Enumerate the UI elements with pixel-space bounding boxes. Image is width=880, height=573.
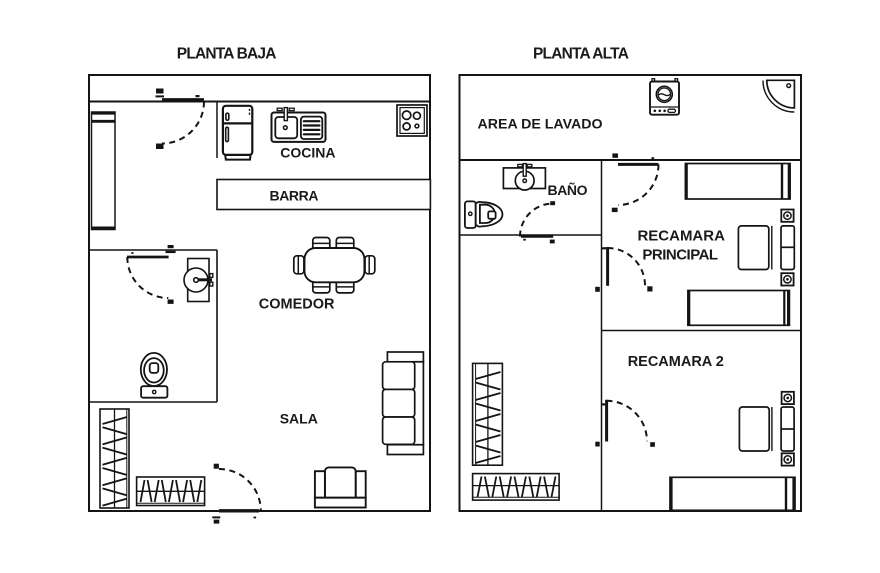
svg-text:PLANTA BAJA: PLANTA BAJA: [177, 46, 276, 63]
svg-text:RECAMARA: RECAMARA: [637, 227, 725, 244]
svg-text:PLANTA ALTA: PLANTA ALTA: [533, 46, 629, 63]
svg-text:BAÑO: BAÑO: [548, 181, 588, 198]
svg-text:COMEDOR: COMEDOR: [259, 296, 335, 312]
svg-text:COCINA: COCINA: [280, 144, 335, 160]
svg-text:BARRA: BARRA: [270, 187, 319, 203]
svg-text:RECAMARA 2: RECAMARA 2: [628, 354, 724, 370]
svg-text:SALA: SALA: [280, 411, 318, 427]
svg-text:PRINCIPAL: PRINCIPAL: [642, 247, 718, 264]
svg-text:AREA DE LAVADO: AREA DE LAVADO: [478, 117, 603, 133]
